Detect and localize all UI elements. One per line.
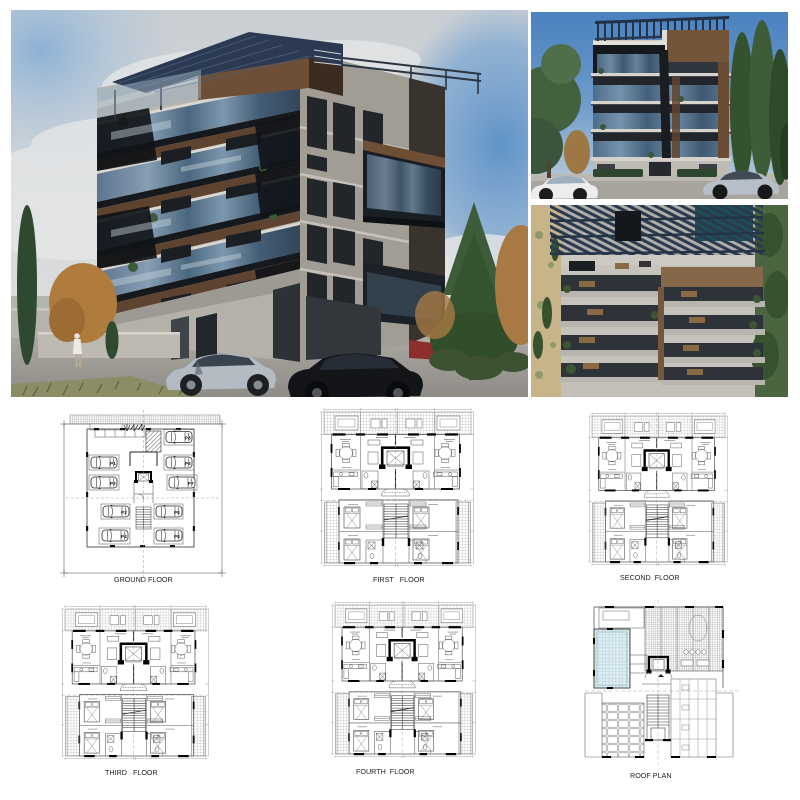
svg-text:P1: P1 [110, 461, 116, 466]
svg-text:P8: P8 [185, 436, 191, 441]
svg-text:P5: P5 [174, 534, 180, 539]
svg-text:P5: P5 [174, 510, 180, 515]
svg-text:P6: P6 [185, 461, 191, 466]
svg-text:P3: P3 [121, 510, 127, 515]
svg-text:P7: P7 [188, 481, 194, 486]
svg-text:P4: P4 [121, 534, 127, 539]
svg-text:P2: P2 [110, 481, 116, 486]
